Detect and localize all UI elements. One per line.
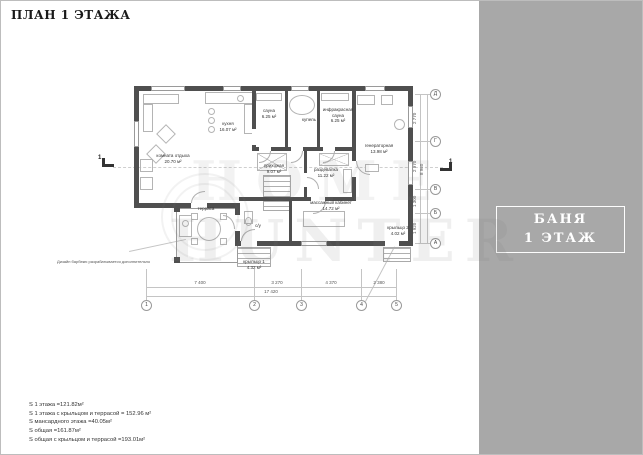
window — [134, 121, 139, 147]
room-area: 16.07 м² — [206, 127, 250, 133]
room-area: 6.25 м² — [255, 114, 283, 120]
room-label-generatornaya: генераторная13.98 м² — [357, 143, 401, 154]
room-name: инфракрасная сауна — [323, 107, 353, 118]
window — [291, 86, 309, 91]
door-swing-arc — [291, 151, 303, 163]
door-opening — [385, 241, 399, 246]
dimension-line — [146, 287, 396, 288]
room-area: 11.22 м² — [306, 173, 346, 179]
sofa — [143, 94, 179, 104]
area-summary-line: S 1 этажа =121.82м² — [29, 401, 151, 410]
sauna-bench — [321, 93, 349, 101]
massage-table — [303, 211, 345, 227]
drawing-sheet: ПЛАН 1 ЭТАЖА БАНЯ 1 ЭТАЖ HOME HUNTER — [0, 0, 643, 455]
section-marker-label: 1 — [98, 155, 101, 161]
section-marker-flag — [449, 162, 452, 170]
wall-segment — [285, 91, 288, 147]
room-area: 6.25 м² — [320, 118, 356, 124]
dimension-line — [146, 296, 396, 297]
note-text: Дизайн барбекю разрабатывается дополните… — [57, 259, 150, 264]
dimension-label: 7 400 — [170, 281, 230, 286]
room-label-kupel: купель — [295, 117, 323, 123]
room-label-massazhny-kabinet: массажный кабинет14.72 м² — [301, 200, 361, 211]
room-label-su: с/у — [248, 223, 268, 229]
dimension-label: 2 380 — [351, 281, 407, 286]
dimension-label: 2 970 — [413, 149, 418, 183]
area-summary-line: S общая =161.87м² — [29, 427, 151, 436]
porch-steps — [383, 247, 411, 262]
generator-equipment — [357, 95, 375, 105]
room-name: купель — [302, 117, 316, 122]
room-name: сауна — [263, 108, 275, 113]
dimension-total-label: 8 960 — [420, 151, 425, 187]
door-opening — [252, 129, 256, 145]
boiler — [394, 119, 405, 130]
room-label-sauna: сауна6.25 м² — [255, 108, 283, 119]
room-label-terrasa: терраса — [186, 206, 226, 212]
dimension-total-label: 17 420 — [241, 290, 301, 295]
room-label-razdevalka: раздевалка11.22 м² — [306, 167, 346, 178]
door-opening — [241, 241, 257, 246]
wall-segment — [289, 201, 292, 241]
coffee-table — [156, 124, 176, 144]
window — [223, 86, 241, 91]
axis-marker: Б — [430, 208, 441, 219]
dimension-label: 1 300 — [413, 189, 418, 213]
door-swing-arc — [356, 161, 370, 175]
axis-marker: 4 — [356, 300, 367, 311]
sink — [237, 95, 244, 102]
axis-marker: В — [430, 184, 441, 195]
window — [301, 241, 327, 246]
sheet-name-plate: БАНЯ 1 ЭТАЖ — [496, 206, 625, 253]
plate-line-2: 1 ЭТАЖ — [524, 230, 597, 249]
section-marker-flag — [102, 158, 105, 166]
room-label-infrakrasnaya-sauna: инфракрасная сауна6.25 м² — [320, 107, 356, 124]
room-area: 20.70 м² — [143, 159, 203, 165]
room-label-kuhnya: кухня16.07 м² — [206, 121, 250, 132]
sauna-bench — [256, 93, 282, 101]
room-name: кухня — [222, 121, 233, 126]
room-name: прихожая — [264, 163, 284, 168]
plunge-tub — [289, 95, 315, 115]
staircase — [263, 175, 291, 211]
window — [365, 86, 385, 91]
axis-marker: 5 — [391, 300, 402, 311]
bar-stool — [208, 108, 215, 115]
room-name: крыльцо 2 — [387, 225, 408, 230]
room-area: 4.02 м² — [380, 231, 416, 237]
area-summary-line: S 1 этажа с крыльцом и террасой = 152.96… — [29, 410, 151, 419]
door-swing-arc — [307, 177, 319, 189]
window — [151, 86, 185, 91]
room-name: с/у — [255, 223, 261, 228]
room-name: крыльцо 1 — [243, 259, 264, 264]
room-area: 14.72 м² — [301, 206, 361, 212]
kitchen-counter — [205, 92, 253, 104]
plate-line-1: БАНЯ — [534, 211, 587, 230]
axis-marker: Д — [430, 89, 441, 100]
room-name: раздевалка — [314, 167, 338, 172]
door-swing-arc — [241, 229, 255, 241]
sofa — [143, 104, 153, 132]
area-summary-line: S мансардного этажа =40.05м² — [29, 418, 151, 427]
area-summary-line: S общая с крыльцом и террасой =193.01м² — [29, 436, 151, 445]
terrace-post — [174, 206, 180, 212]
room-name: терраса — [198, 206, 215, 211]
armchair — [140, 177, 153, 190]
room-area: 13.98 м² — [357, 149, 401, 155]
dimension-label: 2 770 — [413, 102, 418, 134]
room-label-krylco-1: крыльцо 14.32 м² — [236, 259, 272, 270]
page-title: ПЛАН 1 ЭТАЖА — [11, 8, 131, 22]
room-name: комната отдыха — [156, 153, 189, 158]
sidebar-panel: БАНЯ 1 ЭТАЖ — [479, 1, 643, 455]
room-label-krylco-2: крыльцо 24.02 м² — [380, 225, 416, 236]
dimension-label: 3 270 — [249, 281, 305, 286]
door-opening — [235, 215, 240, 231]
axis-marker: А — [430, 238, 441, 249]
generator-equipment — [381, 95, 393, 105]
axis-marker: Г — [430, 136, 441, 147]
axis-marker: 3 — [296, 300, 307, 311]
room-label-prihozhaya: прихожая9.07 м² — [254, 163, 294, 174]
axis-marker: 1 — [141, 300, 152, 311]
room-name: генераторная — [365, 143, 393, 148]
room-area: 9.07 м² — [254, 169, 294, 175]
dimension-label: 1 920 — [413, 216, 418, 240]
terrace-post — [174, 257, 180, 263]
room-area: 4.32 м² — [236, 265, 272, 271]
wall-segment — [134, 86, 139, 208]
room-name: массажный кабинет — [310, 200, 352, 205]
dimension-line — [427, 94, 428, 243]
axis-marker: 2 — [249, 300, 260, 311]
room-label-komnata-otdyha: комната отдыха20.70 м² — [143, 153, 203, 164]
area-summary: S 1 этажа =121.82м² S 1 этажа с крыльцом… — [29, 401, 151, 444]
door-swing-arc — [191, 191, 205, 203]
